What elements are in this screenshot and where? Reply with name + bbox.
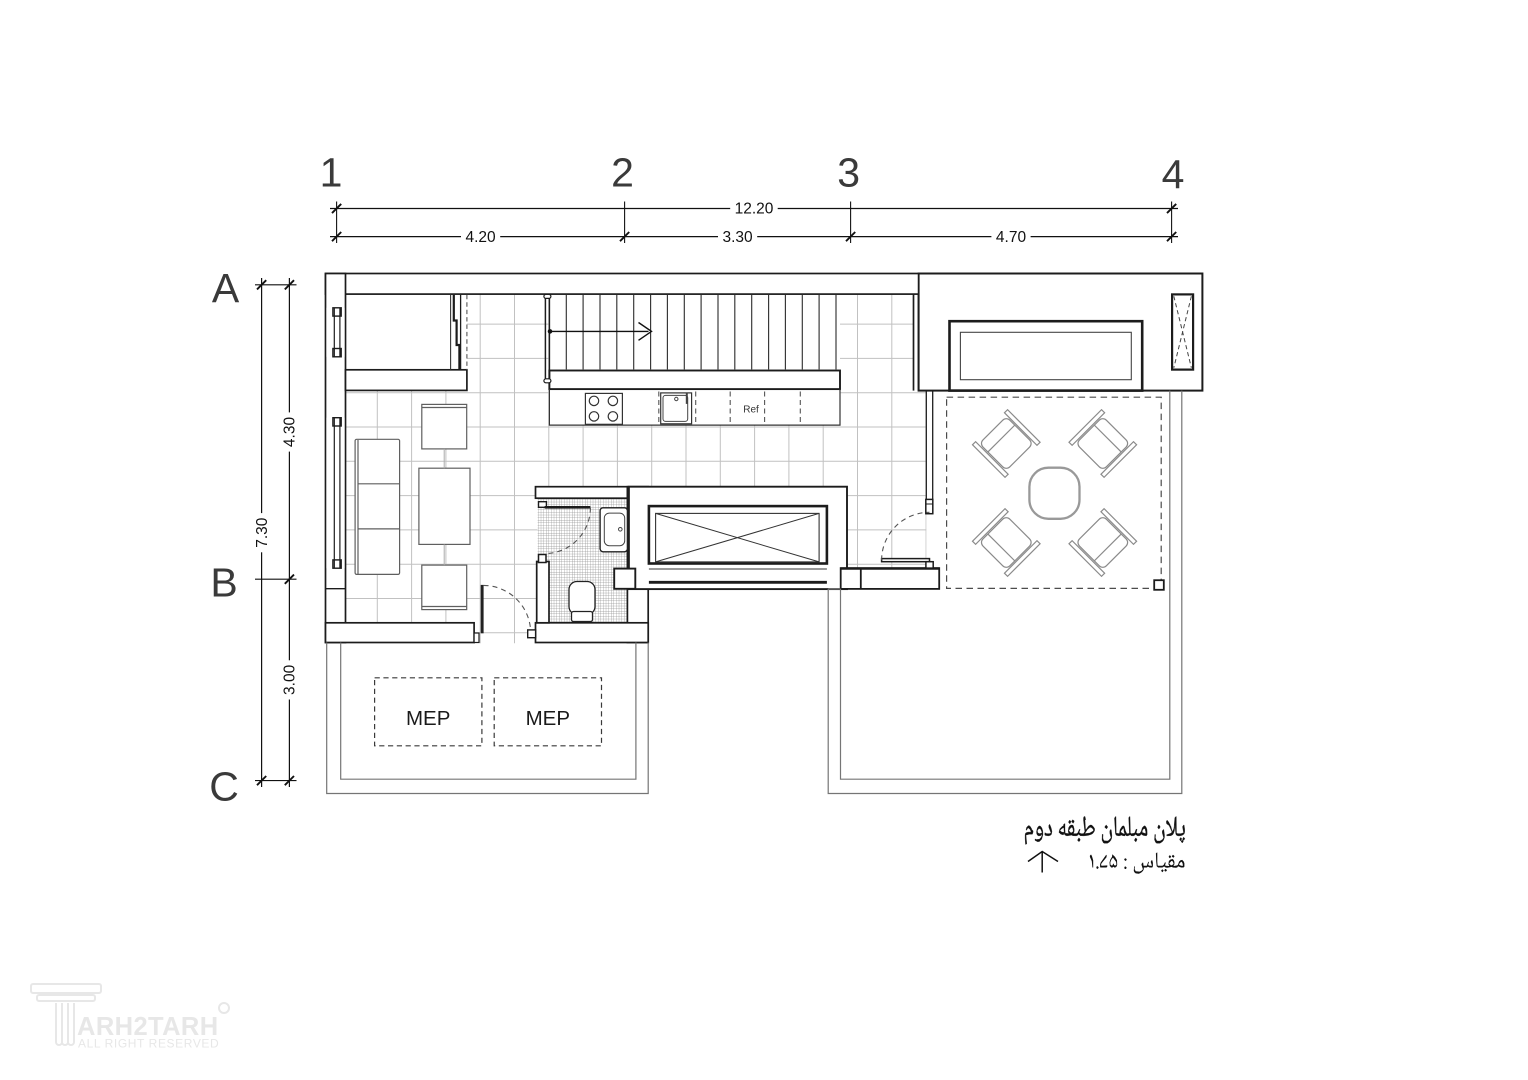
svg-text:12.20: 12.20	[735, 201, 774, 218]
svg-text:1: 1	[320, 149, 343, 195]
svg-text:3: 3	[837, 149, 860, 195]
svg-text:C: C	[209, 763, 239, 809]
svg-text:4.20: 4.20	[466, 229, 497, 246]
svg-text:4: 4	[1162, 151, 1185, 197]
svg-text:MEP: MEP	[406, 707, 450, 730]
svg-text:Ref: Ref	[743, 404, 759, 415]
svg-text:MEP: MEP	[526, 707, 570, 730]
svg-text:A: A	[212, 265, 240, 311]
svg-text:7.30: 7.30	[254, 517, 271, 548]
svg-text:4.30: 4.30	[282, 417, 299, 448]
svg-text:3.00: 3.00	[282, 664, 299, 695]
svg-text:2: 2	[611, 149, 634, 195]
svg-text:B: B	[210, 559, 237, 605]
svg-text:ALL RIGHT RESERVED: ALL RIGHT RESERVED	[78, 1037, 219, 1051]
svg-text:4.70: 4.70	[996, 229, 1027, 246]
svg-text:3.30: 3.30	[723, 229, 754, 246]
